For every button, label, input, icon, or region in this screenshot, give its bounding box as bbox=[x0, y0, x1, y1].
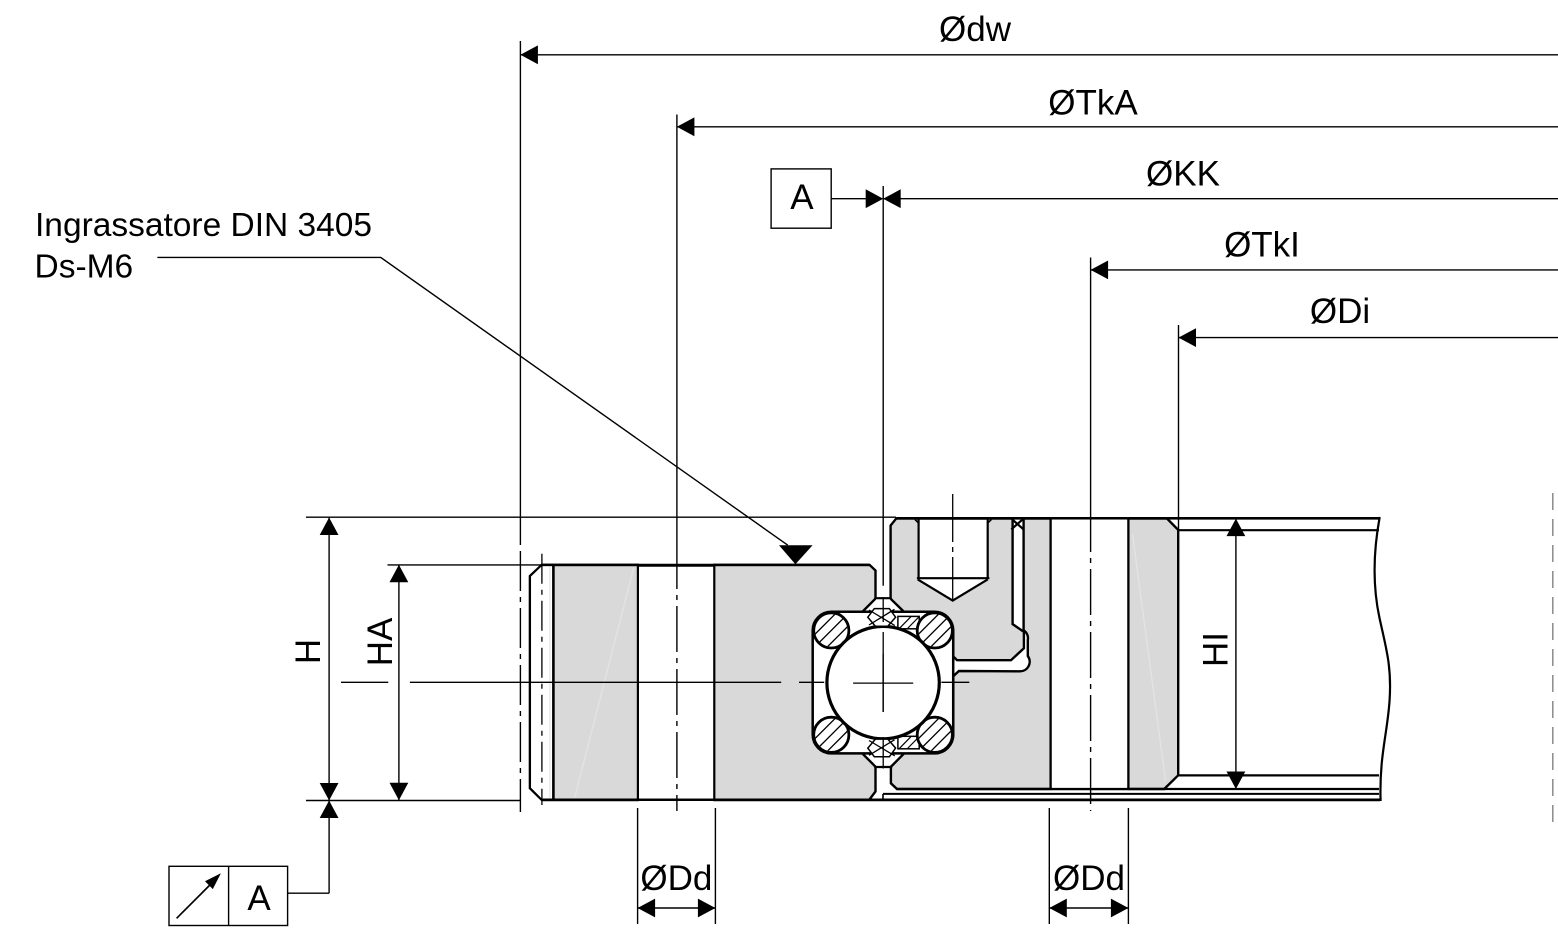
svg-text:A: A bbox=[790, 178, 814, 217]
svg-text:Ødw: Ødw bbox=[939, 10, 1012, 49]
svg-text:ØTkA: ØTkA bbox=[1048, 84, 1138, 123]
svg-text:A: A bbox=[247, 879, 271, 918]
svg-text:ØKK: ØKK bbox=[1146, 155, 1220, 194]
svg-text:ØDi: ØDi bbox=[1310, 292, 1370, 331]
svg-text:ØDd: ØDd bbox=[640, 859, 712, 898]
svg-text:Ingrassatore DIN 3405: Ingrassatore DIN 3405 bbox=[35, 207, 372, 244]
svg-text:H: H bbox=[289, 639, 328, 664]
svg-text:Ds-M6: Ds-M6 bbox=[35, 248, 134, 285]
svg-text:HI: HI bbox=[1196, 632, 1235, 667]
svg-text:HA: HA bbox=[361, 617, 400, 666]
svg-text:ØTkI: ØTkI bbox=[1224, 226, 1300, 265]
svg-text:ØDd: ØDd bbox=[1053, 859, 1125, 898]
